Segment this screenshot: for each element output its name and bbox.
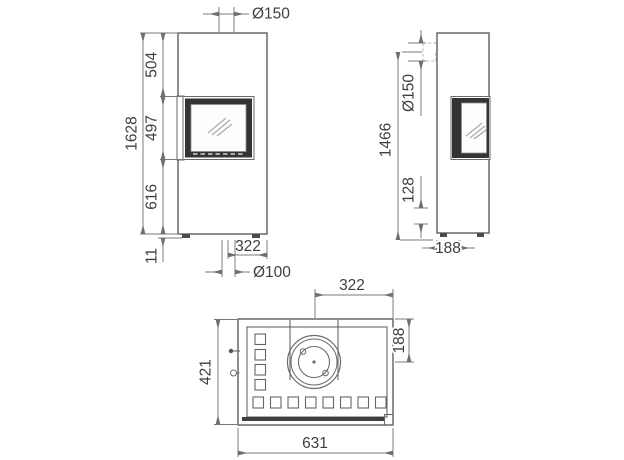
technical-drawing-page: 1628 504 497 616 11 Ø150 322 [0,0,624,460]
hinge-pin-bottom [231,370,237,376]
dim-label-air-inlet-diameter: Ø100 [253,264,291,281]
side-foot-front [477,233,484,237]
door-window-side [451,97,490,160]
dim-label-window-to-base: 616 [144,184,161,210]
dim-label-width: 631 [302,435,328,452]
dim-label-flue-center-to-back: 188 [391,328,408,354]
top-view: 322 188 421 631 [198,277,415,457]
front-edge-band [242,417,385,421]
foot-left [182,234,190,238]
dim-label-rear-flue-height: 1466 [378,123,395,157]
dim-label-window-height: 497 [144,115,161,141]
dim-label-flue-center-to-side: 322 [339,277,365,294]
front-view: 1628 504 497 616 11 Ø150 322 [124,6,292,282]
hinge-pin-top [229,349,233,353]
dim-label-foot-height: 11 [144,248,161,264]
side-view: 1466 Ø150 128 188 [378,30,491,257]
side-foot-rear [440,233,447,237]
door-window-front [177,96,254,160]
collar-center-mark [312,360,315,363]
dim-label-depth: 421 [198,359,215,385]
dim-label-air-pipe-height: 128 [401,177,418,203]
dim-label-flue-diameter-rear: Ø150 [401,74,418,112]
dim-label-air-pipe-center-to-face: 188 [435,240,461,257]
stove-dimension-drawing: 1628 504 497 616 11 Ø150 322 [0,0,624,460]
door-glass [191,105,246,152]
dim-label-top-to-window: 504 [144,51,161,77]
dim-label-flue-diameter-top: Ø150 [252,6,290,23]
dim-label-overall-height: 1628 [124,116,141,150]
dim-label-pipe-center-to-edge: 322 [235,238,261,255]
